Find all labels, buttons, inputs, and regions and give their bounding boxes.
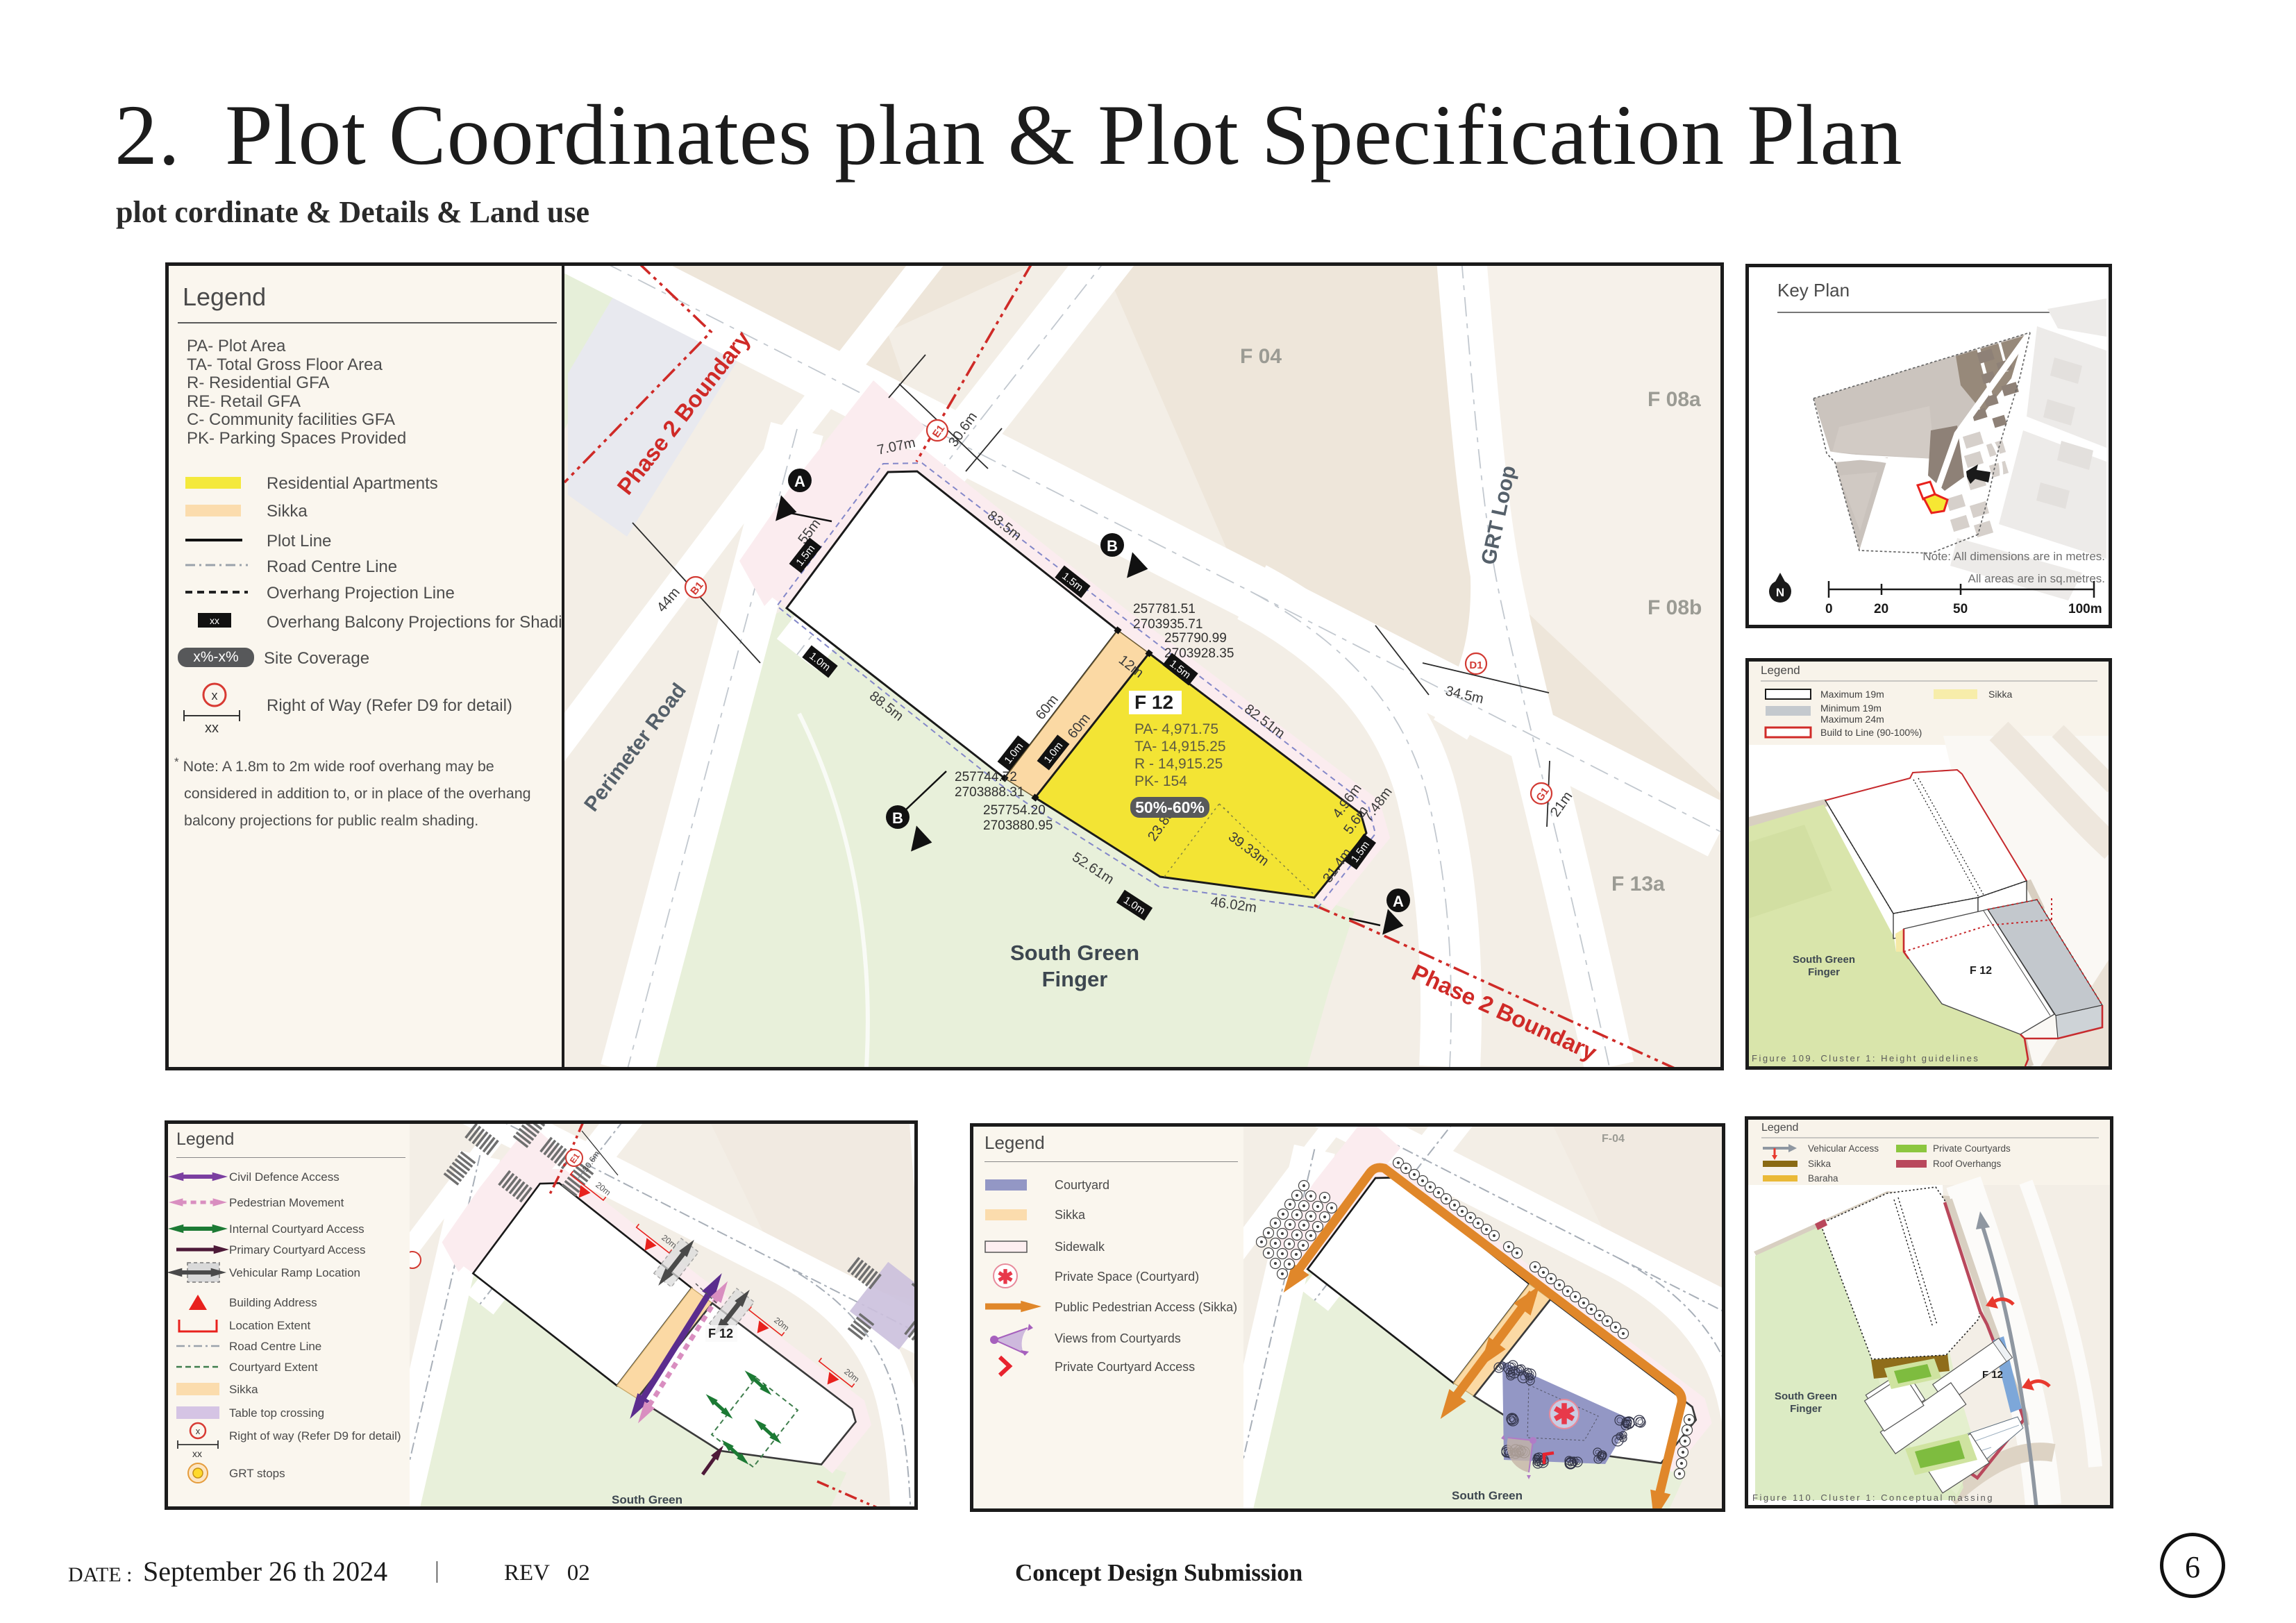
svg-text:50: 50 bbox=[1953, 602, 1968, 616]
svg-text:Vehicular Ramp Location: Vehicular Ramp Location bbox=[229, 1266, 360, 1279]
svg-text:Finger: Finger bbox=[1808, 966, 1840, 978]
svg-text:F 12: F 12 bbox=[708, 1327, 733, 1340]
svg-text:2703935.71: 2703935.71 bbox=[1133, 617, 1203, 632]
svg-text:Sikka: Sikka bbox=[229, 1383, 258, 1396]
svg-text:F 08a: F 08a bbox=[1648, 388, 1701, 411]
svg-text:Primary Courtyard Access: Primary Courtyard Access bbox=[229, 1243, 366, 1256]
svg-text:Courtyard Extent: Courtyard Extent bbox=[229, 1361, 318, 1374]
svg-text:20: 20 bbox=[1874, 602, 1888, 616]
svg-text:Sikka: Sikka bbox=[1988, 689, 2012, 700]
svg-text:South Green: South Green bbox=[1793, 954, 1855, 966]
svg-text:F 13a: F 13a bbox=[1611, 873, 1665, 895]
svg-text:Minimum 19m: Minimum 19m bbox=[1820, 703, 1882, 714]
svg-text:R - 14,915.25: R - 14,915.25 bbox=[1134, 756, 1223, 772]
svg-text:F 12: F 12 bbox=[1134, 691, 1173, 713]
svg-text:South Green: South Green bbox=[1010, 941, 1139, 965]
svg-text:PA- 4,971.75: PA- 4,971.75 bbox=[1134, 721, 1218, 737]
svg-text:A: A bbox=[794, 473, 805, 490]
svg-text:Private Courtyards: Private Courtyards bbox=[1933, 1143, 2011, 1154]
svg-text:Build to Line (90-100%): Build to Line (90-100%) bbox=[1820, 727, 1922, 738]
svg-text:Private Space (Courtyard): Private Space (Courtyard) bbox=[1055, 1270, 1199, 1284]
svg-text:Internal Courtyard Access: Internal Courtyard Access bbox=[229, 1222, 364, 1236]
svg-text:South Green: South Green bbox=[1775, 1390, 1837, 1402]
svg-text:South Green: South Green bbox=[612, 1493, 682, 1506]
svg-text:F 04: F 04 bbox=[1240, 345, 1282, 368]
svg-text:257754.20: 257754.20 bbox=[983, 803, 1046, 818]
svg-text:F 12: F 12 bbox=[1970, 965, 1992, 977]
svg-text:Sidewalk: Sidewalk bbox=[1055, 1240, 1105, 1254]
svg-text:Sikka: Sikka bbox=[1055, 1208, 1086, 1222]
svg-text:South Green: South Green bbox=[1452, 1489, 1523, 1502]
svg-text:257781.51: 257781.51 bbox=[1133, 602, 1196, 616]
svg-text:B: B bbox=[892, 809, 903, 827]
svg-text:F 08b: F 08b bbox=[1648, 596, 1702, 619]
svg-text:Civil Defence Access: Civil Defence Access bbox=[229, 1170, 340, 1184]
svg-text:Public Pedestrian Access (Sikk: Public Pedestrian Access (Sikka) bbox=[1055, 1300, 1237, 1314]
svg-text:0: 0 bbox=[1825, 602, 1833, 616]
svg-text:2703880.95: 2703880.95 bbox=[983, 818, 1053, 833]
svg-text:All areas are in sq.metres.: All areas are in sq.metres. bbox=[1968, 572, 2105, 585]
svg-text:Maximum 24m: Maximum 24m bbox=[1820, 714, 1884, 725]
svg-text:Figure 110. Cluster 1: Conc: Figure 110. Cluster 1: Conceptual massin… bbox=[1752, 1492, 1994, 1503]
svg-text:F 12: F 12 bbox=[1982, 1369, 2003, 1381]
svg-text:Finger: Finger bbox=[1790, 1403, 1822, 1415]
svg-text:Pedestrian Movement: Pedestrian Movement bbox=[229, 1196, 344, 1209]
svg-text:xx: xx bbox=[192, 1448, 202, 1459]
svg-text:Sikka: Sikka bbox=[1808, 1159, 1832, 1169]
svg-text:Legend: Legend bbox=[1761, 1122, 1798, 1134]
svg-text:D1: D1 bbox=[1469, 659, 1482, 671]
svg-text:Table top crossing: Table top crossing bbox=[229, 1406, 324, 1420]
svg-text:50%-60%: 50%-60% bbox=[1135, 798, 1205, 816]
svg-text:Location Extent: Location Extent bbox=[229, 1319, 310, 1332]
svg-text:Courtyard: Courtyard bbox=[1055, 1178, 1109, 1192]
svg-text:TA- 14,915.25: TA- 14,915.25 bbox=[1134, 739, 1226, 755]
svg-text:Legend: Legend bbox=[1761, 664, 1800, 677]
svg-text:257790.99: 257790.99 bbox=[1164, 631, 1227, 646]
svg-text:x: x bbox=[196, 1426, 201, 1436]
svg-text:2703888.31: 2703888.31 bbox=[955, 785, 1024, 800]
svg-text:Finger: Finger bbox=[1042, 967, 1108, 991]
svg-text:100m: 100m bbox=[2068, 602, 2102, 616]
svg-text:Road Centre Line: Road Centre Line bbox=[229, 1340, 321, 1353]
svg-text:Vehicular Access: Vehicular Access bbox=[1808, 1143, 1879, 1154]
svg-text:PK- 154: PK- 154 bbox=[1134, 773, 1187, 789]
svg-text:Building Address: Building Address bbox=[229, 1296, 317, 1309]
svg-text:A: A bbox=[1393, 893, 1404, 910]
svg-text:N: N bbox=[1776, 586, 1784, 599]
svg-text:✱: ✱ bbox=[1552, 1399, 1576, 1430]
svg-text:Roof Overhangs: Roof Overhangs bbox=[1933, 1159, 2002, 1169]
svg-text:Figure 109. Cluster 1: Heig: Figure 109. Cluster 1: Height guidelines bbox=[1752, 1053, 1979, 1063]
svg-text:Private Courtyard Access: Private Courtyard Access bbox=[1055, 1360, 1195, 1374]
svg-text:Maximum 19m: Maximum 19m bbox=[1820, 689, 1884, 700]
svg-text:Note: All dimensions are in me: Note: All dimensions are in metres. bbox=[1922, 550, 2105, 563]
svg-text:Views from Courtyards: Views from Courtyards bbox=[1055, 1331, 1181, 1345]
svg-text:F-04: F-04 bbox=[1602, 1133, 1625, 1145]
svg-text:Baraha: Baraha bbox=[1808, 1173, 1838, 1184]
svg-text:✱: ✱ bbox=[997, 1266, 1013, 1288]
svg-text:B: B bbox=[1107, 537, 1118, 555]
svg-text:257744.72: 257744.72 bbox=[955, 770, 1017, 784]
svg-text:GRT stops: GRT stops bbox=[229, 1467, 285, 1480]
svg-text:Right of way (Refer D9 for det: Right of way (Refer D9 for detail) bbox=[229, 1429, 401, 1443]
